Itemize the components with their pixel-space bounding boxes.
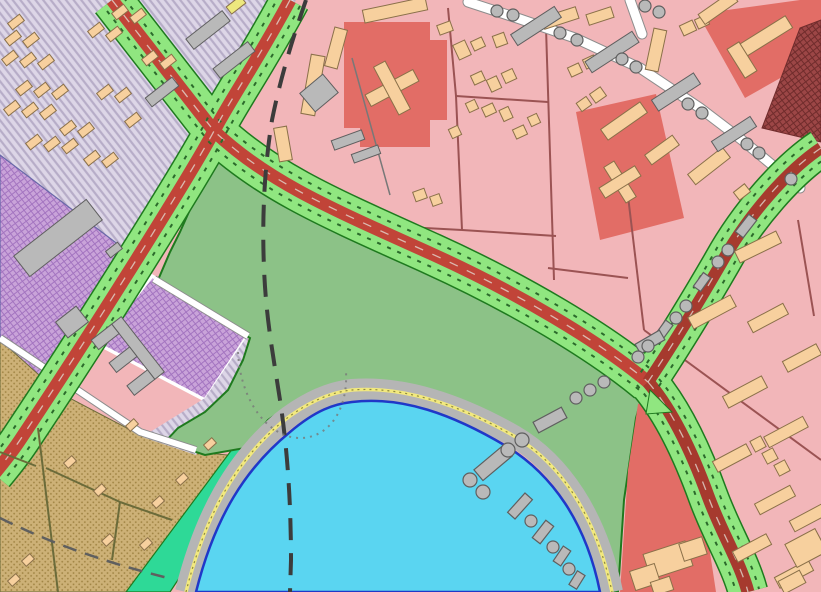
tree-icon bbox=[554, 27, 566, 39]
tree-icon bbox=[476, 485, 490, 499]
map-viewport[interactable] bbox=[0, 0, 821, 592]
map-canvas[interactable] bbox=[0, 0, 821, 592]
tree-icon bbox=[547, 541, 559, 553]
tree-icon bbox=[785, 173, 797, 185]
tree-icon bbox=[630, 61, 642, 73]
tree-icon bbox=[682, 98, 694, 110]
tree-icon bbox=[696, 107, 708, 119]
tree-icon bbox=[712, 256, 724, 268]
tree-icon bbox=[680, 300, 692, 312]
tree-icon bbox=[639, 0, 651, 12]
tree-icon bbox=[525, 515, 537, 527]
tree-icon bbox=[571, 34, 583, 46]
tree-icon bbox=[642, 340, 654, 352]
tree-icon bbox=[515, 433, 529, 447]
tree-icon bbox=[741, 138, 753, 150]
tree-icon bbox=[616, 53, 628, 65]
tree-icon bbox=[563, 563, 575, 575]
tree-icon bbox=[491, 5, 503, 17]
tree-icon bbox=[463, 473, 477, 487]
tree-icon bbox=[570, 392, 582, 404]
tree-icon bbox=[501, 443, 515, 457]
tree-icon bbox=[632, 351, 644, 363]
tree-icon bbox=[753, 147, 765, 159]
tree-icon bbox=[670, 312, 682, 324]
tree-icon bbox=[722, 244, 734, 256]
tree-icon bbox=[653, 6, 665, 18]
tree-icon bbox=[507, 9, 519, 21]
tree-icon bbox=[598, 376, 610, 388]
tree-icon bbox=[584, 384, 596, 396]
